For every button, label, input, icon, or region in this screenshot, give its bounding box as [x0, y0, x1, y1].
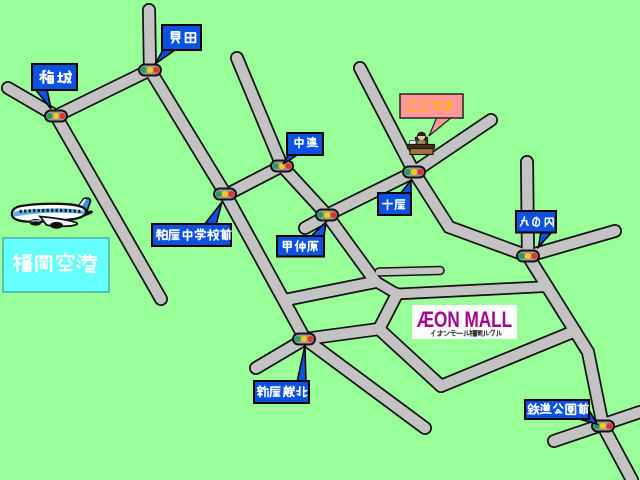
svg-text:ÆON MALL: ÆON MALL: [417, 308, 512, 333]
